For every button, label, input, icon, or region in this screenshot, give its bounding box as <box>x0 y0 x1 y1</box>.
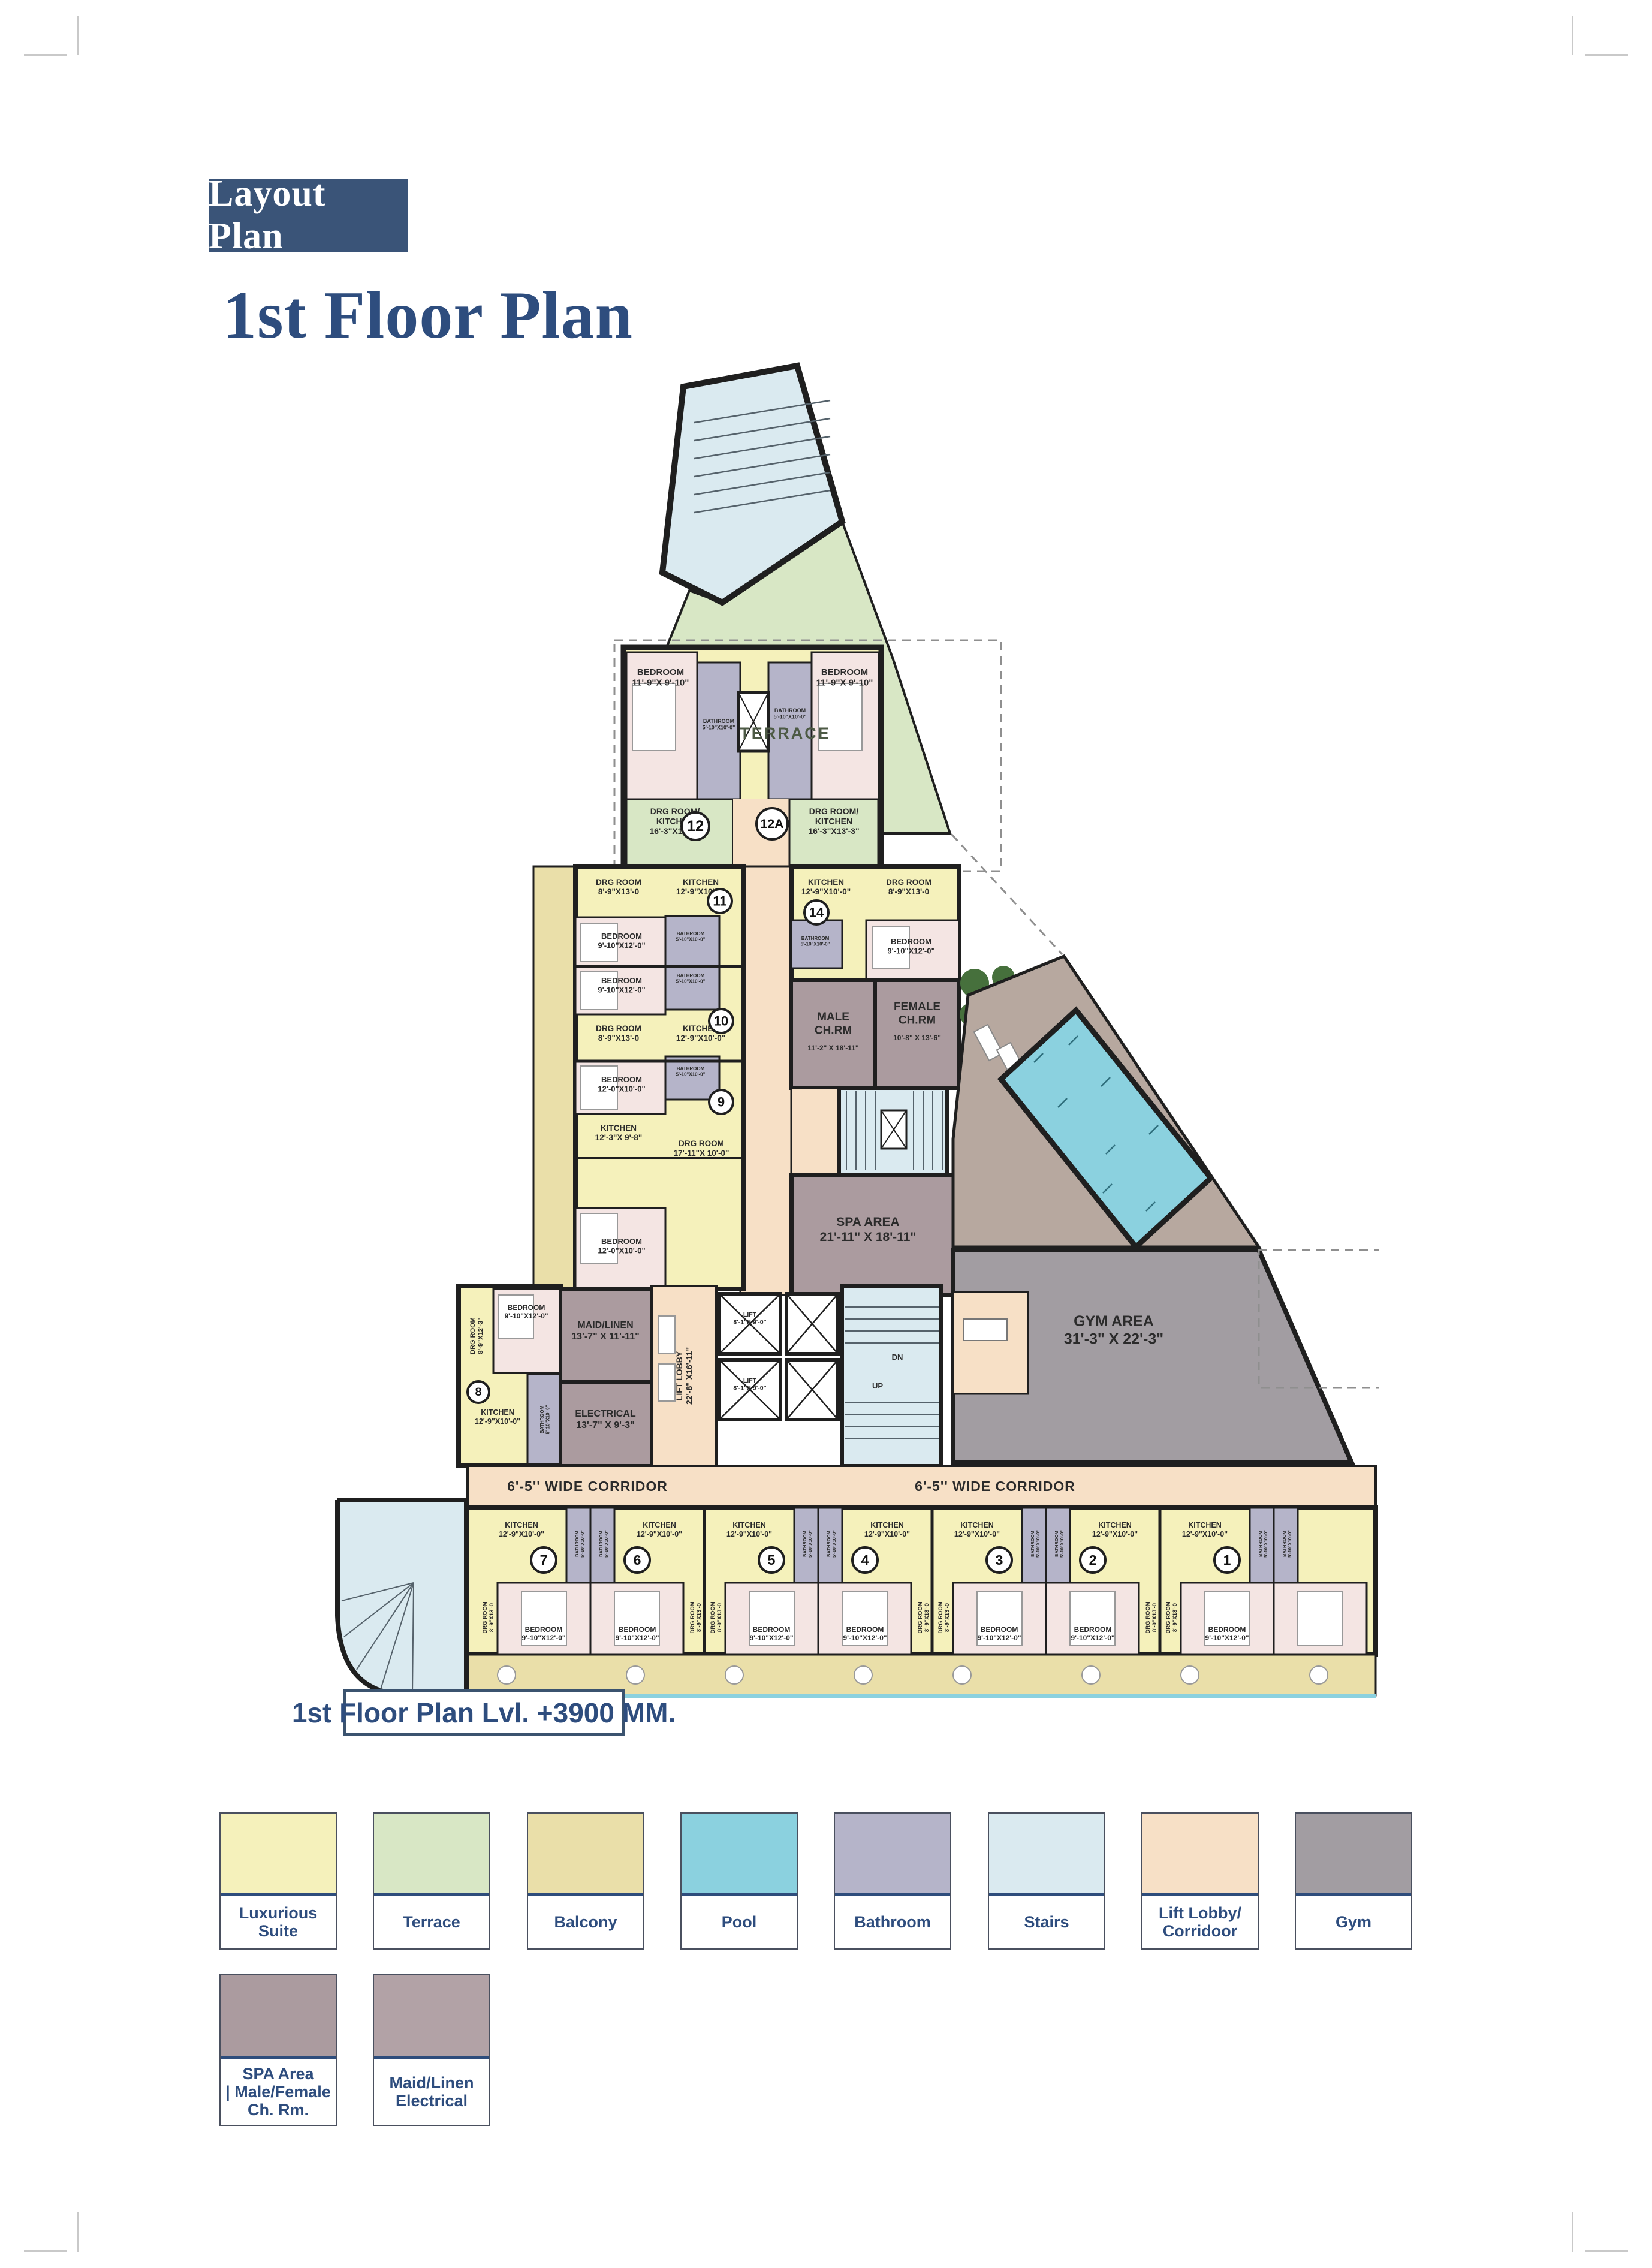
room-label: DRG ROOM8'-9"X13'-0 <box>689 1601 703 1633</box>
legend-item-stairs: Stairs <box>988 1812 1105 1950</box>
room-label: BATHROOM5'-10"X10'-0" <box>1054 1530 1065 1558</box>
room-label: BATHROOM5'-10"X10'-0" <box>1258 1530 1268 1558</box>
legend-label: Luxurious Suite <box>221 1896 336 1948</box>
unit-number-12A: 12A <box>760 817 783 831</box>
crop-mark <box>24 54 67 56</box>
legend-label: Pool <box>682 1896 797 1948</box>
male-chrm-label: MALECH.RM <box>815 1011 852 1037</box>
room-label: BEDROOM9'-10"X12'-0" <box>977 1625 1021 1642</box>
gym-reception <box>953 1292 1028 1394</box>
legend-swatch <box>1296 1814 1411 1896</box>
caption-box: 1st Floor Plan Lvl. +3900 MM. <box>343 1689 625 1736</box>
caption-text: 1st Floor Plan Lvl. +3900 MM. <box>292 1697 676 1729</box>
room-label: BEDROOM9'-10"X12'-0" <box>521 1625 565 1642</box>
room-label: 10'-8" X 13'-6" <box>893 1034 941 1042</box>
plan-shape <box>632 683 676 751</box>
legend-item-bathroom: Bathroom <box>834 1812 951 1950</box>
room-label: BEDROOM9'-10"X12'-0" <box>749 1625 793 1642</box>
room-label: BATHROOM5'-10"X10'-0" <box>801 936 830 947</box>
legend-swatch <box>1142 1814 1258 1896</box>
corridor-vertical <box>740 866 791 1295</box>
room-label: BATHROOM5'-10"X10'-0" <box>676 973 706 984</box>
room-label: BEDROOM9'-10"X12'-0" <box>598 976 645 994</box>
crop-mark <box>1572 16 1573 55</box>
legend-swatch <box>682 1814 797 1896</box>
room-label: KITCHEN12'-9"X10'-0" <box>1092 1521 1138 1538</box>
room-label: BATHROOM5'-10"X10'-0" <box>703 718 735 731</box>
crop-mark <box>1572 2212 1573 2252</box>
room-label: BEDROOM12'-0"X10'-0" <box>598 1237 645 1255</box>
room-label: DRG ROOM8'-9"X13'-0 <box>596 878 641 896</box>
room-label: BEDROOM9'-10"X12'-0" <box>504 1303 548 1320</box>
balcony-table <box>1181 1666 1199 1684</box>
legend-item-gym: Gym <box>1295 1812 1412 1950</box>
room-label: KITCHEN12'-9"X10'-0" <box>499 1521 544 1538</box>
corridor-label-right: 6'-5'' WIDE CORRIDOR <box>915 1478 1075 1494</box>
balcony-table <box>725 1666 743 1684</box>
room-label: BEDROOM9'-10"X12'-0" <box>1071 1625 1114 1642</box>
legend-label: Balcony <box>528 1896 643 1948</box>
unit-number-9: 9 <box>718 1095 725 1110</box>
crop-mark <box>1585 2250 1628 2252</box>
room-label: BATHROOM5'-10"X10'-0" <box>598 1530 609 1558</box>
room-label: DRG ROOM8'-9"X13'-0 <box>482 1601 495 1633</box>
room-label: KITCHEN12'-9"X10'-0" <box>954 1521 1000 1538</box>
balcony-table <box>1310 1666 1328 1684</box>
legend-label: Bathroom <box>835 1896 950 1948</box>
room-label: DRG ROOM/KITCHEN16'-3"X13'-3" <box>808 806 859 836</box>
site-boundary-dash <box>952 835 1062 954</box>
legend-swatch <box>374 1975 489 2059</box>
legend-swatch <box>221 1814 336 1896</box>
legend-item-maid-linen: Maid/Linen Electrical <box>373 1974 490 2126</box>
crop-mark <box>24 2250 67 2252</box>
room-label: BATHROOM5'-10"X10'-0" <box>826 1530 837 1558</box>
unit-number-11: 11 <box>713 894 726 909</box>
maid-label: MAID/LINEN13'-7" X 11'-11" <box>571 1320 640 1342</box>
room-label: KITCHEN12'-9"X10'-0" <box>637 1521 682 1538</box>
legend-label: Terrace <box>374 1896 489 1948</box>
room-label: BATHROOM5'-10"X10'-0" <box>802 1530 813 1558</box>
room-label: DRG ROOM8'-9"X13'-0 <box>1165 1601 1178 1633</box>
lift-lobby-label: LIFT LOBBY22'-8" X16'-11" <box>674 1347 694 1405</box>
room-label: 11'-2" X 18'-11" <box>807 1044 858 1052</box>
room-label: BEDROOM11'-9"X 9'-10" <box>632 667 689 688</box>
legend-item-lift-lobby-: Lift Lobby/ Corridoor <box>1141 1812 1259 1950</box>
unit-number-3: 3 <box>996 1552 1003 1568</box>
room-label: KITCHEN12'-9"X10'-0" <box>801 878 851 896</box>
legend-label: Gym <box>1296 1896 1411 1948</box>
unit-number-2: 2 <box>1089 1552 1097 1568</box>
legend-label: Lift Lobby/ Corridoor <box>1142 1896 1258 1948</box>
room-label: DRG ROOM8'-9"X13'-0 <box>710 1601 723 1633</box>
room-label: BEDROOM12'-0"X10'-0" <box>598 1075 645 1093</box>
unit-number-1: 1 <box>1223 1552 1231 1568</box>
room-label: DRG ROOM8'-9"X13'-0 <box>1145 1601 1158 1633</box>
page-title: 1st Floor Plan <box>223 277 633 354</box>
room-label: BEDROOM11'-9"X 9'-10" <box>816 667 873 688</box>
balcony-table <box>1082 1666 1100 1684</box>
unit-number-8: 8 <box>475 1386 481 1399</box>
room-label: BEDROOM9'-10"X12'-0" <box>615 1625 659 1642</box>
unit-number-4: 4 <box>861 1552 869 1568</box>
legend-label: Maid/Linen Electrical <box>374 2059 489 2125</box>
room-label: BATHROOM5'-10"X10'-0" <box>676 931 706 942</box>
layout-plan-tag: Layout Plan <box>209 179 408 252</box>
legend-swatch <box>989 1814 1104 1896</box>
balcony-left <box>533 866 575 1289</box>
floor-plan: TERRACEBEDROOM11'-9"X 9'-10"BEDROOM11'-9… <box>324 360 1379 1715</box>
balcony-table <box>854 1666 872 1684</box>
room-label: BATHROOM5'-10"X10'-0" <box>676 1066 706 1077</box>
room-label: DRG ROOM8'-9"X13'-0 <box>937 1601 951 1633</box>
room-label: DRG ROOM17'-11"X 10'-0" <box>674 1139 729 1158</box>
crop-mark <box>77 2212 79 2252</box>
unit-number-14: 14 <box>809 905 824 920</box>
female-chrm-label: FEMALECH.RM <box>894 1001 940 1026</box>
legend-swatch <box>528 1814 643 1896</box>
room-label: KITCHEN12'-9"X10'-0" <box>864 1521 910 1538</box>
room-label: DRG ROOM8'-9"X12'-3" <box>469 1317 484 1354</box>
bathroom-9 <box>665 1056 719 1100</box>
layout-plan-tag-text: Layout Plan <box>209 173 408 258</box>
mid-stair-landing <box>791 1088 839 1175</box>
plan-shape <box>1298 1592 1343 1646</box>
room-label: BEDROOM9'-10"X12'-0" <box>843 1625 887 1642</box>
unit-number-10: 10 <box>714 1014 728 1029</box>
room-label: BATHROOM5'-10"X10'-0" <box>1282 1530 1292 1558</box>
room-label: BEDROOM9'-10"X12'-0" <box>887 937 934 955</box>
legend-label: Stairs <box>989 1896 1104 1948</box>
room-label: KITCHEN12'-9"X10'-0" <box>475 1408 520 1426</box>
unit-number-5: 5 <box>768 1552 776 1568</box>
room-label: DRG ROOM8'-9"X13'-0 <box>596 1024 641 1043</box>
crop-mark <box>1585 54 1628 56</box>
room-label: BEDROOM9'-10"X12'-0" <box>598 932 645 950</box>
legend-item-spa-area: SPA Area | Male/Female Ch. Rm. <box>219 1974 337 2126</box>
legend-item-pool: Pool <box>680 1812 798 1950</box>
legend-swatch <box>835 1814 950 1896</box>
crop-mark <box>77 16 79 55</box>
plan-shape <box>658 1364 675 1401</box>
legend-item-luxurious-suite: Luxurious Suite <box>219 1812 337 1950</box>
room-label: BATHROOM5'-10"X10'-0" <box>774 707 807 720</box>
legend-label: SPA Area | Male/Female Ch. Rm. <box>221 2059 336 2125</box>
balcony-table <box>498 1666 516 1684</box>
legend-swatch <box>221 1975 336 2059</box>
room-label: DN <box>892 1353 903 1362</box>
terrace-label: TERRACE <box>740 724 831 742</box>
legend-item-balcony: Balcony <box>527 1812 644 1950</box>
room-label: BATHROOM5'-10"X10'-0" <box>574 1530 585 1558</box>
room-label: BEDROOM9'-10"X12'-0" <box>1205 1625 1249 1642</box>
electrical-label: ELECTRICAL13'-7" X 9'-3" <box>575 1409 636 1430</box>
corridor-label-left: 6'-5'' WIDE CORRIDOR <box>507 1478 668 1494</box>
gym-label: GYM AREA31'-3" X 22'-3" <box>1064 1313 1163 1348</box>
room-label: BATHROOM5'-10"X10'-0" <box>539 1405 550 1434</box>
balcony-table <box>626 1666 644 1684</box>
unit-number-6: 6 <box>634 1552 641 1568</box>
balcony-table <box>953 1666 971 1684</box>
legend-item-terrace: Terrace <box>373 1812 490 1950</box>
unit-number-7: 7 <box>540 1552 548 1568</box>
plan-shape <box>964 1319 1007 1341</box>
plan-shape <box>658 1316 675 1353</box>
room-label: KITCHEN12'-9"X10'-0" <box>726 1521 772 1538</box>
unit-number-12: 12 <box>687 818 704 835</box>
bathroom-12 <box>697 662 740 799</box>
room-label: DRG ROOM8'-9"X13'-0 <box>917 1601 930 1633</box>
legend-swatch <box>374 1814 489 1896</box>
room-label: KITCHEN12'-9"X10'-0" <box>1182 1521 1228 1538</box>
room-label: KITCHEN12'-3"X 9'-8" <box>595 1124 643 1142</box>
room-label: UP <box>872 1381 883 1390</box>
room-label: BATHROOM5'-10"X10'-0" <box>1030 1530 1041 1558</box>
room-label: DRG ROOM8'-9"X13'-0 <box>886 878 931 896</box>
